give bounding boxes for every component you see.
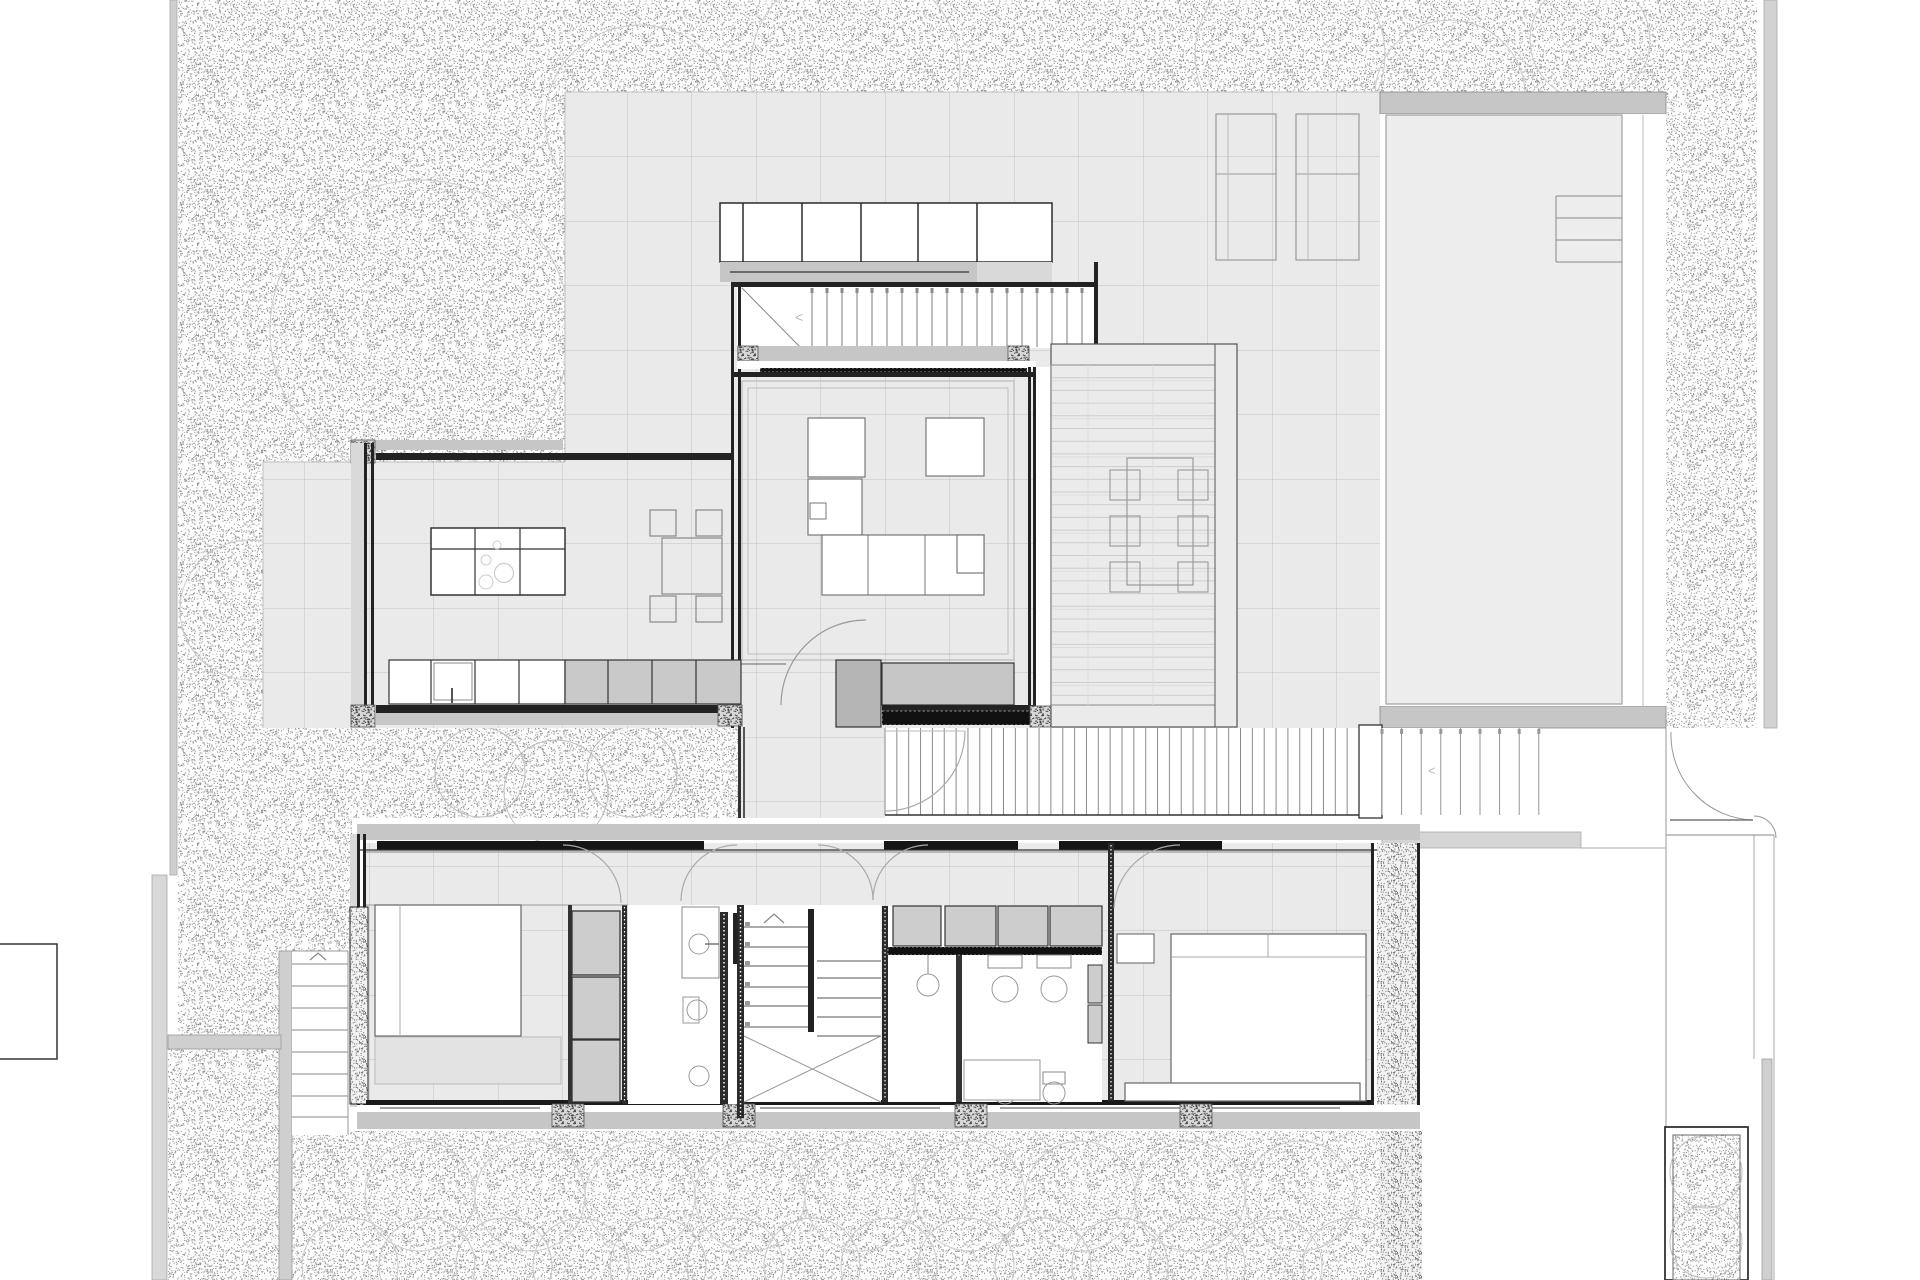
svg-text:<: <	[795, 309, 803, 325]
svg-text:<: <	[1428, 763, 1436, 778]
